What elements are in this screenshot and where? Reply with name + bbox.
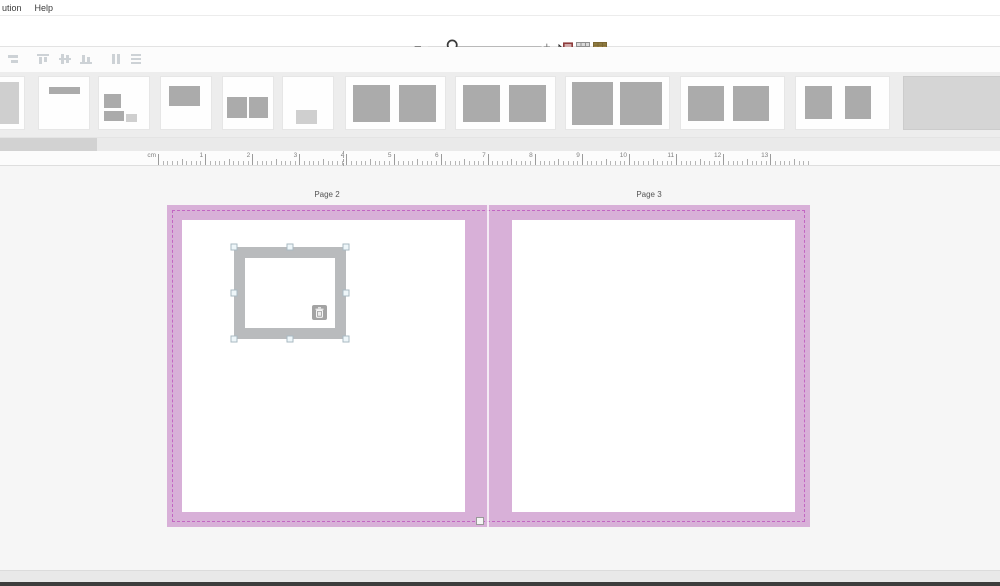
ruler-tick xyxy=(436,161,437,165)
ruler-tick xyxy=(794,159,795,165)
ruler-tick xyxy=(281,161,282,165)
ruler-tick xyxy=(686,161,687,165)
ruler-tick xyxy=(210,161,211,165)
spine-resize-handle[interactable] xyxy=(476,517,484,525)
ruler-tick xyxy=(521,161,522,165)
template-spread-two-images-narrow[interactable] xyxy=(795,76,890,130)
menu-item-help[interactable]: Help xyxy=(35,3,54,13)
ruler-tick xyxy=(252,154,253,165)
ruler-tick xyxy=(304,161,305,165)
ruler-tick xyxy=(761,161,762,165)
ruler-tick xyxy=(657,161,658,165)
ruler-tick xyxy=(394,154,395,165)
ruler-tick xyxy=(196,161,197,165)
ruler-tick xyxy=(248,161,249,165)
ruler-tick xyxy=(700,159,701,165)
align-bottom-icon[interactable] xyxy=(78,51,94,67)
ruler-tick xyxy=(648,161,649,165)
template-image-placeholder xyxy=(296,110,317,124)
ruler-number: 6 xyxy=(425,152,439,159)
ruler-tick xyxy=(177,161,178,165)
page-spread xyxy=(167,205,810,527)
canvas-area: Page 2 Page 3 xyxy=(0,166,1000,570)
ruler-number: 3 xyxy=(283,152,297,159)
ruler-tick xyxy=(323,159,324,165)
ruler-tick xyxy=(808,161,809,165)
ruler-tick xyxy=(789,161,790,165)
ruler-tick xyxy=(695,161,696,165)
templates-strip xyxy=(0,72,1000,138)
ruler-tick xyxy=(690,161,691,165)
template-image-with-caption[interactable] xyxy=(98,76,150,130)
ruler-tick xyxy=(224,161,225,165)
resize-handle[interactable] xyxy=(231,336,238,343)
ruler-tick xyxy=(398,161,399,165)
ruler-tick xyxy=(497,161,498,165)
template-image-placeholder xyxy=(227,97,247,117)
hscrollbar-thumb[interactable] xyxy=(0,138,97,151)
photo-frame[interactable] xyxy=(234,247,346,339)
ruler-position-indicator xyxy=(343,151,344,166)
ruler-tick xyxy=(747,159,748,165)
ruler-tick xyxy=(784,161,785,165)
resize-handle[interactable] xyxy=(287,244,294,251)
ruler-tick xyxy=(492,161,493,165)
page-3-label: Page 3 xyxy=(609,190,689,199)
ruler-tick xyxy=(375,161,376,165)
ruler-tick xyxy=(422,161,423,165)
resize-handle[interactable] xyxy=(343,336,350,343)
ruler-tick xyxy=(478,161,479,165)
distribute-vertical-icon[interactable] xyxy=(128,51,144,67)
ruler-tick xyxy=(455,161,456,165)
ruler-tick xyxy=(766,161,767,165)
ruler-tick xyxy=(238,161,239,165)
ruler-tick xyxy=(257,161,258,165)
ruler-tick xyxy=(290,161,291,165)
distribute-horizontal-icon[interactable] xyxy=(108,51,124,67)
ruler-tick xyxy=(337,161,338,165)
template-image-placeholder xyxy=(353,85,390,122)
template-image-placeholder xyxy=(169,86,201,105)
template-image-placeholder xyxy=(49,87,80,94)
ruler-tick xyxy=(332,161,333,165)
ruler-tick xyxy=(714,161,715,165)
ruler-tick xyxy=(285,161,286,165)
ruler-tick xyxy=(780,161,781,165)
template-image-placeholder xyxy=(126,114,137,122)
ruler-tick xyxy=(775,161,776,165)
align-top-icon[interactable] xyxy=(35,51,51,67)
photo-frame-placeholder[interactable] xyxy=(245,258,335,328)
ruler-tick xyxy=(262,161,263,165)
template-image-placeholder xyxy=(249,97,268,117)
template-image-placeholder xyxy=(845,86,871,119)
ruler-number: 13 xyxy=(754,152,768,159)
ruler-tick xyxy=(544,161,545,165)
ruler-tick xyxy=(535,154,536,165)
ruler-number: 2 xyxy=(236,152,250,159)
ruler-tick xyxy=(229,159,230,165)
template-spread-two-images-b[interactable] xyxy=(455,76,556,130)
ruler-tick xyxy=(427,161,428,165)
ruler-tick xyxy=(295,161,296,165)
menu-bar: utionHelp xyxy=(0,0,1000,16)
template-spread-two-images-a[interactable] xyxy=(345,76,446,130)
ruler-tick xyxy=(629,154,630,165)
ruler-tick xyxy=(163,161,164,165)
template-image-placeholder xyxy=(805,86,832,119)
ruler-tick xyxy=(610,161,611,165)
ruler-tick xyxy=(511,159,512,165)
ruler-tick xyxy=(450,161,451,165)
ruler-tick xyxy=(737,161,738,165)
ruler-tick xyxy=(318,161,319,165)
ruler-tick xyxy=(591,161,592,165)
ruler-tick xyxy=(525,161,526,165)
ruler-tick xyxy=(219,161,220,165)
ruler-tick xyxy=(723,154,724,165)
ruler-number: 7 xyxy=(472,152,486,159)
ruler-tick xyxy=(379,161,380,165)
ruler-tick xyxy=(577,161,578,165)
ruler-tick xyxy=(563,161,564,165)
ruler-tick xyxy=(606,159,607,165)
align-toolbar xyxy=(0,47,1000,72)
template-image-placeholder xyxy=(104,111,124,121)
ruler-tick xyxy=(313,161,314,165)
template-image-placeholder xyxy=(463,85,500,122)
ruler-tick xyxy=(671,161,672,165)
ruler-tick xyxy=(243,161,244,165)
ruler-tick xyxy=(172,161,173,165)
align-middle-icon[interactable] xyxy=(57,51,73,67)
ruler-tick xyxy=(205,154,206,165)
ruler-tick xyxy=(653,159,654,165)
ruler: cm12345678910111213 xyxy=(0,151,1000,166)
ruler-tick xyxy=(167,161,168,165)
ruler-tick xyxy=(638,161,639,165)
resize-handle[interactable] xyxy=(231,290,238,297)
template-image-placeholder xyxy=(509,85,546,122)
ruler-tick xyxy=(356,161,357,165)
ruler-tick xyxy=(582,154,583,165)
ruler-tick xyxy=(549,161,550,165)
align-right-icon[interactable] xyxy=(5,51,21,67)
ruler-tick xyxy=(554,161,555,165)
ruler-tick xyxy=(568,161,569,165)
ruler-tick xyxy=(483,161,484,165)
ruler-tick xyxy=(361,161,362,165)
template-image-placeholder xyxy=(399,85,436,122)
trash-icon xyxy=(315,307,324,318)
ruler-tick xyxy=(803,161,804,165)
ruler-tick xyxy=(351,161,352,165)
ruler-tick xyxy=(266,161,267,165)
hscrollbar-track[interactable] xyxy=(0,138,1000,151)
ruler-tick xyxy=(507,161,508,165)
ruler-number: 11 xyxy=(660,152,674,159)
ruler-tick xyxy=(365,161,366,165)
ruler-tick xyxy=(389,161,390,165)
ruler-tick xyxy=(191,161,192,165)
ruler-tick xyxy=(200,161,201,165)
template-spread-two-images-c[interactable] xyxy=(680,76,785,130)
ruler-tick xyxy=(445,161,446,165)
ruler-tick xyxy=(516,161,517,165)
ruler-tick xyxy=(704,161,705,165)
ruler-tick xyxy=(459,161,460,165)
ruler-tick xyxy=(719,161,720,165)
ruler-tick xyxy=(667,161,668,165)
ruler-tick xyxy=(276,159,277,165)
ruler-tick xyxy=(752,161,753,165)
ruler-tick xyxy=(186,161,187,165)
ruler-tick xyxy=(346,154,347,165)
template-image-placeholder xyxy=(688,86,724,121)
ruler-tick xyxy=(540,161,541,165)
ruler-tick xyxy=(474,161,475,165)
ruler-tick xyxy=(756,161,757,165)
resize-handle[interactable] xyxy=(287,336,294,343)
ruler-tick xyxy=(384,161,385,165)
ruler-tick xyxy=(233,161,234,165)
ruler-tick xyxy=(587,161,588,165)
ruler-tick xyxy=(681,161,682,165)
bottom-strip xyxy=(0,570,1000,582)
spine-divider xyxy=(487,205,489,527)
ruler-tick xyxy=(634,161,635,165)
ruler-tick xyxy=(412,161,413,165)
ruler-tick xyxy=(488,154,489,165)
ruler-tick xyxy=(770,154,771,165)
ruler-tick xyxy=(417,159,418,165)
page-2-label: Page 2 xyxy=(287,190,367,199)
resize-handle[interactable] xyxy=(343,244,350,251)
template-two-images[interactable] xyxy=(222,76,274,130)
template-title-bar[interactable] xyxy=(38,76,90,130)
ruler-tick xyxy=(530,161,531,165)
template-small-caption-bottom[interactable] xyxy=(282,76,334,130)
ruler-tick xyxy=(662,161,663,165)
ruler-tick xyxy=(215,161,216,165)
ruler-tick xyxy=(709,161,710,165)
template-image-placeholder xyxy=(620,82,662,125)
ruler-tick xyxy=(620,161,621,165)
ruler-tick xyxy=(403,161,404,165)
template-full-page[interactable] xyxy=(0,76,25,130)
template-single-image-top[interactable] xyxy=(160,76,212,130)
zoom-toolbar: − + xyxy=(0,16,1000,47)
ruler-number: 12 xyxy=(707,152,721,159)
ruler-tick xyxy=(370,159,371,165)
ruler-tick xyxy=(676,154,677,165)
ruler-tick xyxy=(596,161,597,165)
ruler-tick xyxy=(643,161,644,165)
ruler-tick xyxy=(441,154,442,165)
ruler-tick xyxy=(158,154,159,165)
ruler-number: cm xyxy=(142,152,156,159)
template-image-placeholder xyxy=(733,86,769,121)
ruler-tick xyxy=(502,161,503,165)
template-image-placeholder xyxy=(0,82,19,125)
ruler-tick xyxy=(464,159,465,165)
ruler-number: 8 xyxy=(519,152,533,159)
ruler-tick xyxy=(601,161,602,165)
ruler-tick xyxy=(328,161,329,165)
ruler-tick xyxy=(728,161,729,165)
ruler-tick xyxy=(271,161,272,165)
ruler-tick xyxy=(299,154,300,165)
ruler-number: 1 xyxy=(189,152,203,159)
ruler-tick xyxy=(742,161,743,165)
ruler-tick xyxy=(624,161,625,165)
window-bottom-edge xyxy=(0,582,1000,586)
template-spread-two-images-large[interactable] xyxy=(565,76,670,130)
ruler-tick xyxy=(431,161,432,165)
ruler-tick xyxy=(615,161,616,165)
template-image-placeholder xyxy=(104,94,121,108)
resize-handle[interactable] xyxy=(231,244,238,251)
ruler-number: 10 xyxy=(613,152,627,159)
ruler-tick xyxy=(558,159,559,165)
ruler-tick xyxy=(733,161,734,165)
ruler-tick xyxy=(182,159,183,165)
page-3-area[interactable] xyxy=(512,220,795,512)
template-image-placeholder xyxy=(572,82,613,125)
delete-frame-button[interactable] xyxy=(312,305,327,320)
ruler-tick xyxy=(469,161,470,165)
template-placeholder-block[interactable] xyxy=(903,76,1000,130)
resize-handle[interactable] xyxy=(343,290,350,297)
ruler-number: 5 xyxy=(378,152,392,159)
ruler-tick xyxy=(309,161,310,165)
photobook-editor-window: utionHelp − + xyxy=(0,0,1000,586)
ruler-tick xyxy=(573,161,574,165)
ruler-tick xyxy=(799,161,800,165)
menu-item-ution[interactable]: ution xyxy=(2,3,22,13)
ruler-number: 9 xyxy=(566,152,580,159)
ruler-tick xyxy=(408,161,409,165)
